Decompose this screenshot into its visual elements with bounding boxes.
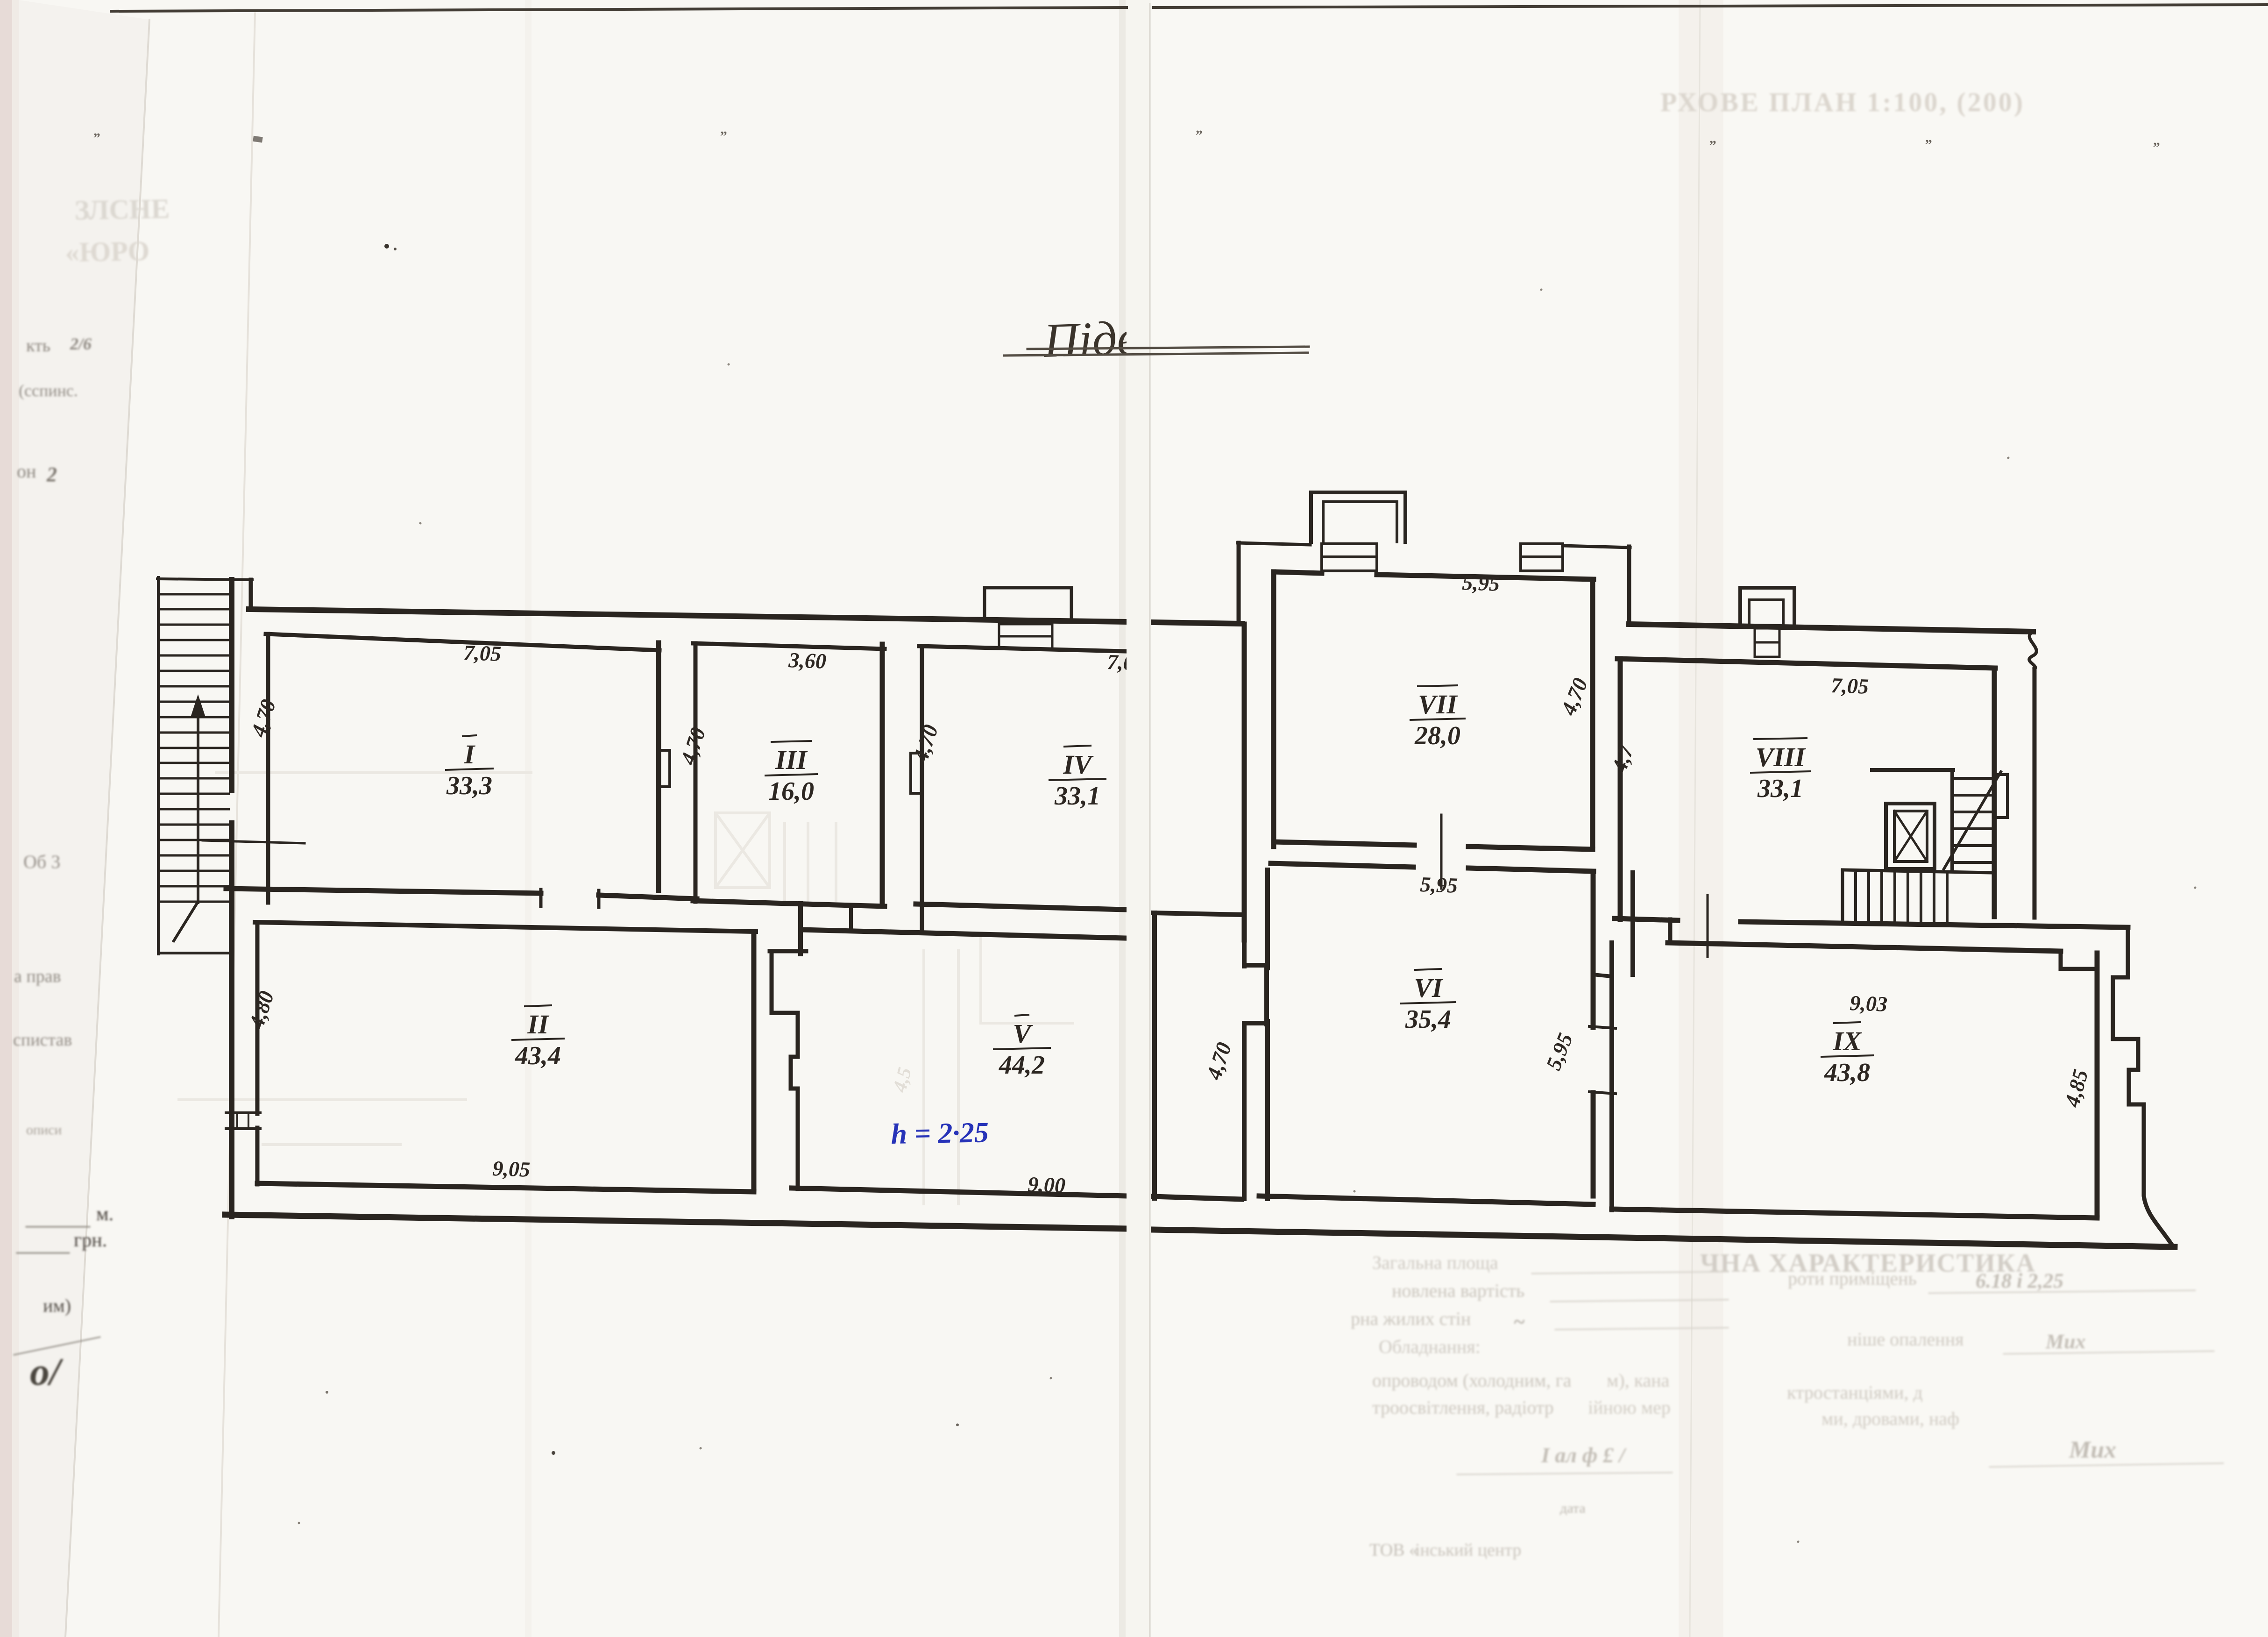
svg-text:им): им) (43, 1295, 71, 1316)
svg-text:грн.: грн. (74, 1230, 107, 1251)
svg-text:новлена вартість: новлена вартість (1392, 1280, 1524, 1301)
svg-text:VI: VI (1414, 973, 1444, 1003)
svg-text:5,95: 5,95 (1420, 872, 1458, 897)
svg-text:9,05: 9,05 (492, 1156, 531, 1181)
svg-text:„: „ (2153, 133, 2160, 148)
svg-text:ніше опалення: ніше опалення (1847, 1329, 1964, 1350)
svg-text:а прав: а прав (14, 967, 61, 986)
svg-text:2: 2 (46, 463, 57, 486)
svg-text:33,1: 33,1 (1054, 782, 1100, 811)
svg-text:Підв: Підв (1042, 311, 1139, 368)
svg-text:ми, дровами, наф: ми, дровами, наф (1821, 1408, 1959, 1429)
svg-text:описи: описи (26, 1122, 62, 1138)
svg-text:I: I (464, 739, 476, 769)
svg-text:„: „ (1925, 130, 1932, 145)
svg-text:„: „ (720, 121, 727, 137)
svg-text:м), кана: м), кана (1607, 1370, 1670, 1391)
svg-text:VIII: VIII (1756, 742, 1807, 772)
svg-text:3,60: 3,60 (788, 648, 827, 673)
svg-text:V: V (1013, 1018, 1033, 1049)
svg-text:„: „ (93, 123, 100, 139)
svg-text:роти приміщень: роти приміщень (1788, 1268, 1917, 1289)
svg-text:Об 3: Об 3 (23, 851, 60, 872)
svg-text:7,05: 7,05 (1831, 673, 1869, 698)
svg-text:Мих: Мих (2045, 1330, 2086, 1353)
svg-text:кть: кть (26, 336, 50, 356)
svg-text:«ЮРО: «ЮРО (65, 235, 150, 268)
svg-text:рна жилих стін: рна жилих стін (1351, 1308, 1471, 1329)
svg-text:28,0: 28,0 (1414, 721, 1460, 750)
svg-text:ктростанціями, д: ктростанціями, д (1787, 1382, 1923, 1403)
svg-text:VII: VII (1418, 689, 1458, 719)
svg-text:III: III (775, 745, 808, 775)
svg-text:2/6: 2/6 (70, 335, 92, 353)
svg-text:ТОВ «: ТОВ « (1369, 1540, 1418, 1560)
svg-text:Загальна площа: Загальна площа (1372, 1252, 1498, 1273)
svg-text:43,4: 43,4 (515, 1041, 561, 1070)
svg-text:о/: о/ (30, 1350, 64, 1394)
svg-text:дата: дата (1560, 1501, 1586, 1516)
svg-text:6.18 і 2,25: 6.18 і 2,25 (1976, 1269, 2063, 1292)
svg-text:44,2: 44,2 (999, 1051, 1045, 1080)
svg-text:троосвітлення, радіотр: троосвітлення, радіотр (1372, 1397, 1554, 1418)
svg-text:IV: IV (1063, 749, 1094, 780)
svg-text:м.: м. (96, 1203, 113, 1225)
svg-text:опроводом (холодним, га: опроводом (холодним, га (1372, 1370, 1572, 1391)
svg-text:7,05: 7,05 (463, 641, 502, 666)
svg-text:„: „ (1709, 131, 1716, 146)
svg-text:РХОВЕ ПЛАН 1:100, (200): РХОВЕ ПЛАН 1:100, (200) (1660, 87, 2025, 117)
svg-text:Обладнання:: Обладнання: (1379, 1336, 1481, 1357)
svg-text:(сспинс.: (сспинс. (19, 381, 78, 400)
svg-text:16,0: 16,0 (768, 777, 814, 806)
svg-text:5,95: 5,95 (1462, 570, 1500, 596)
svg-text:інський центр: інський центр (1415, 1540, 1521, 1560)
svg-text:ЗЛСНЕ: ЗЛСНЕ (74, 193, 170, 226)
svg-text:„: „ (1196, 121, 1203, 136)
svg-text:43,8: 43,8 (1824, 1058, 1870, 1087)
svg-text:II: II (527, 1009, 550, 1039)
svg-text:спистав: спистав (13, 1030, 72, 1050)
svg-text:Мих: Мих (2069, 1437, 2116, 1463)
svg-text:9,00: 9,00 (1028, 1172, 1066, 1197)
svg-text:І ал ф £ /: І ал ф £ / (1541, 1443, 1627, 1467)
svg-text:h = 2·25: h = 2·25 (891, 1117, 989, 1150)
svg-text:~: ~ (1513, 1310, 1525, 1333)
svg-text:33,3: 33,3 (446, 771, 492, 800)
svg-text:9,03: 9,03 (1850, 991, 1888, 1016)
svg-text:33,1: 33,1 (1757, 774, 1803, 803)
svg-text:он: он (17, 461, 36, 482)
svg-text:IX: IX (1832, 1026, 1862, 1056)
svg-text:35,4: 35,4 (1405, 1005, 1451, 1034)
svg-text:ійною мер: ійною мер (1588, 1397, 1671, 1418)
